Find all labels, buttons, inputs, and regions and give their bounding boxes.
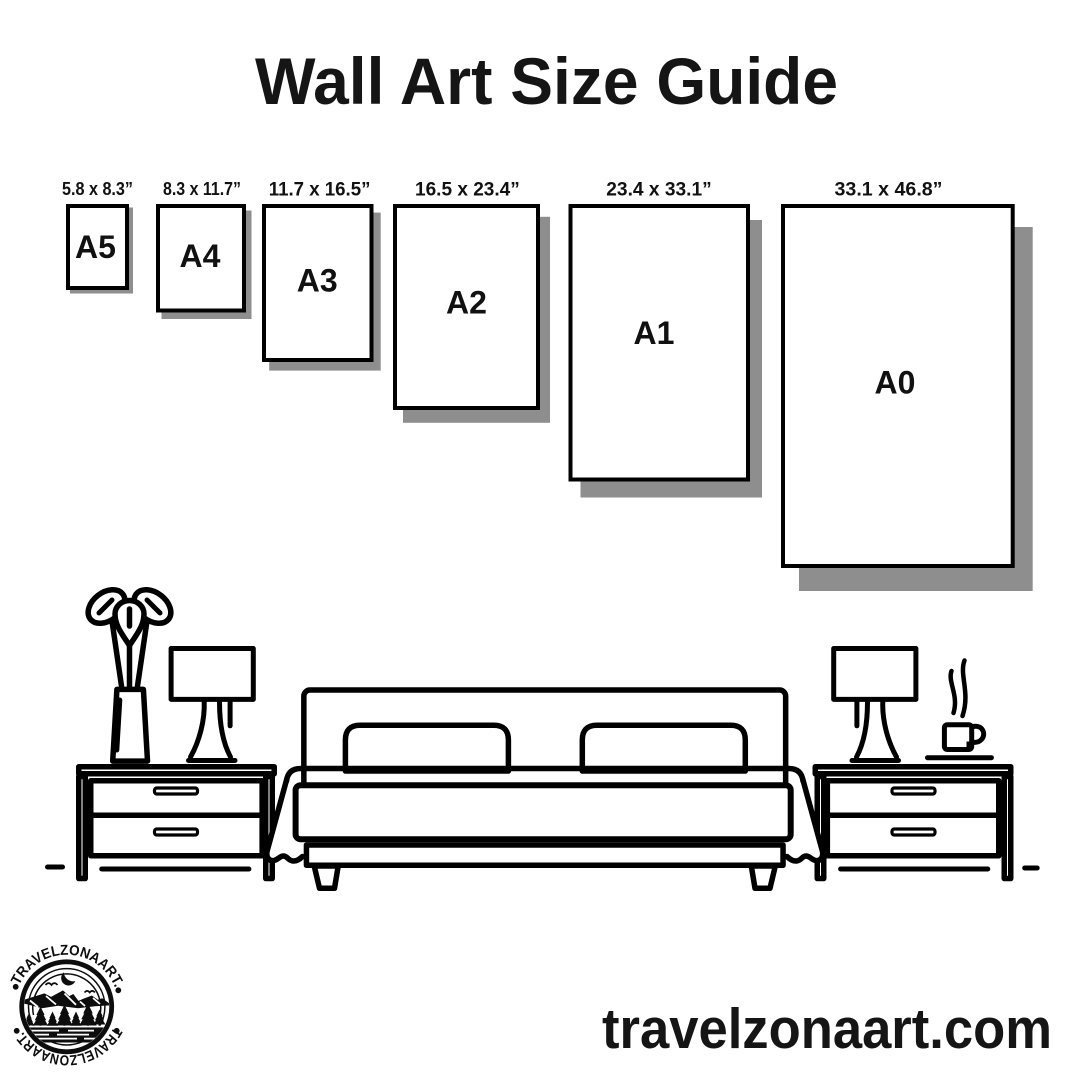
svg-text:travelzonaart.com: travelzonaart.com bbox=[602, 997, 1052, 1061]
svg-text:A1: A1 bbox=[634, 315, 675, 351]
svg-text:23.4 x 33.1”: 23.4 x 33.1” bbox=[606, 179, 712, 201]
svg-text:A0: A0 bbox=[875, 365, 916, 401]
svg-text:11.7 x 16.5”: 11.7 x 16.5” bbox=[269, 179, 371, 201]
svg-text:33.1 x 46.8”: 33.1 x 46.8” bbox=[835, 179, 943, 201]
svg-text:8.3 x 11.7”: 8.3 x 11.7” bbox=[163, 179, 241, 199]
svg-text:5.8 x 8.3”: 5.8 x 8.3” bbox=[62, 179, 133, 199]
svg-text:A5: A5 bbox=[75, 229, 116, 265]
svg-text:Wall Art Size Guide: Wall Art Size Guide bbox=[255, 44, 838, 118]
svg-text:16.5 x 23.4”: 16.5 x 23.4” bbox=[415, 179, 520, 201]
svg-text:A3: A3 bbox=[297, 263, 338, 299]
svg-text:A4: A4 bbox=[180, 238, 221, 274]
svg-text:A2: A2 bbox=[446, 285, 487, 321]
